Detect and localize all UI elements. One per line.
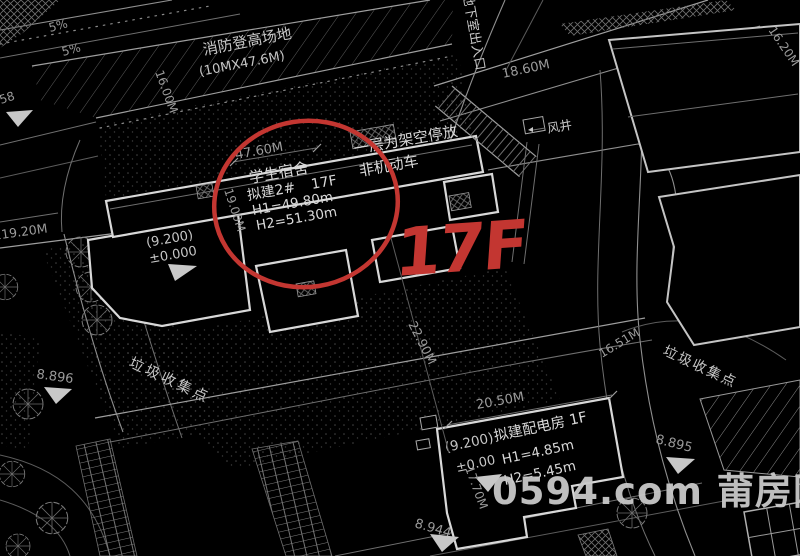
crosswalk-strip bbox=[76, 439, 137, 556]
spot-8-896: 8.896 bbox=[35, 367, 74, 387]
tree-icon bbox=[82, 305, 112, 335]
stair-core bbox=[196, 183, 214, 199]
watermark-text: 0594.com 莆房网 bbox=[492, 470, 800, 513]
wind-shaft-label: 风井 bbox=[546, 117, 573, 136]
basement-entrance-label: 地下室出入口 bbox=[459, 0, 488, 72]
site-plan-drawing: 消防登高场地 (10MX47.6M) 5% 5% bbox=[0, 0, 800, 556]
dim-18-60: 18.60M bbox=[501, 57, 551, 82]
tree-icon bbox=[0, 274, 18, 300]
hatched-area bbox=[700, 380, 800, 477]
dim-119-20: 119.20M bbox=[0, 221, 48, 243]
elevation-marker bbox=[44, 387, 72, 404]
slope-label-2: 5% bbox=[60, 40, 82, 58]
tree-icon bbox=[0, 461, 25, 487]
spot-58: 58 bbox=[0, 89, 16, 107]
red-17f-annotation: 17F bbox=[393, 205, 529, 292]
garbage-point-right-label: 垃圾收集点 bbox=[660, 342, 740, 391]
hatch-patch bbox=[578, 529, 617, 556]
leader-arrow bbox=[528, 127, 533, 132]
tree-icon bbox=[36, 502, 68, 534]
elevation-marker bbox=[6, 110, 33, 127]
site-plan-screenshot: 消防登高场地 (10MX47.6M) 5% 5% bbox=[0, 0, 800, 556]
wind-shaft-box bbox=[523, 117, 545, 134]
building-outline bbox=[659, 175, 800, 345]
crosswalk-strip bbox=[252, 441, 332, 556]
small-structure bbox=[420, 415, 438, 430]
small-structure bbox=[416, 439, 430, 450]
tree-icon bbox=[6, 534, 30, 556]
tree-icon bbox=[13, 389, 43, 419]
